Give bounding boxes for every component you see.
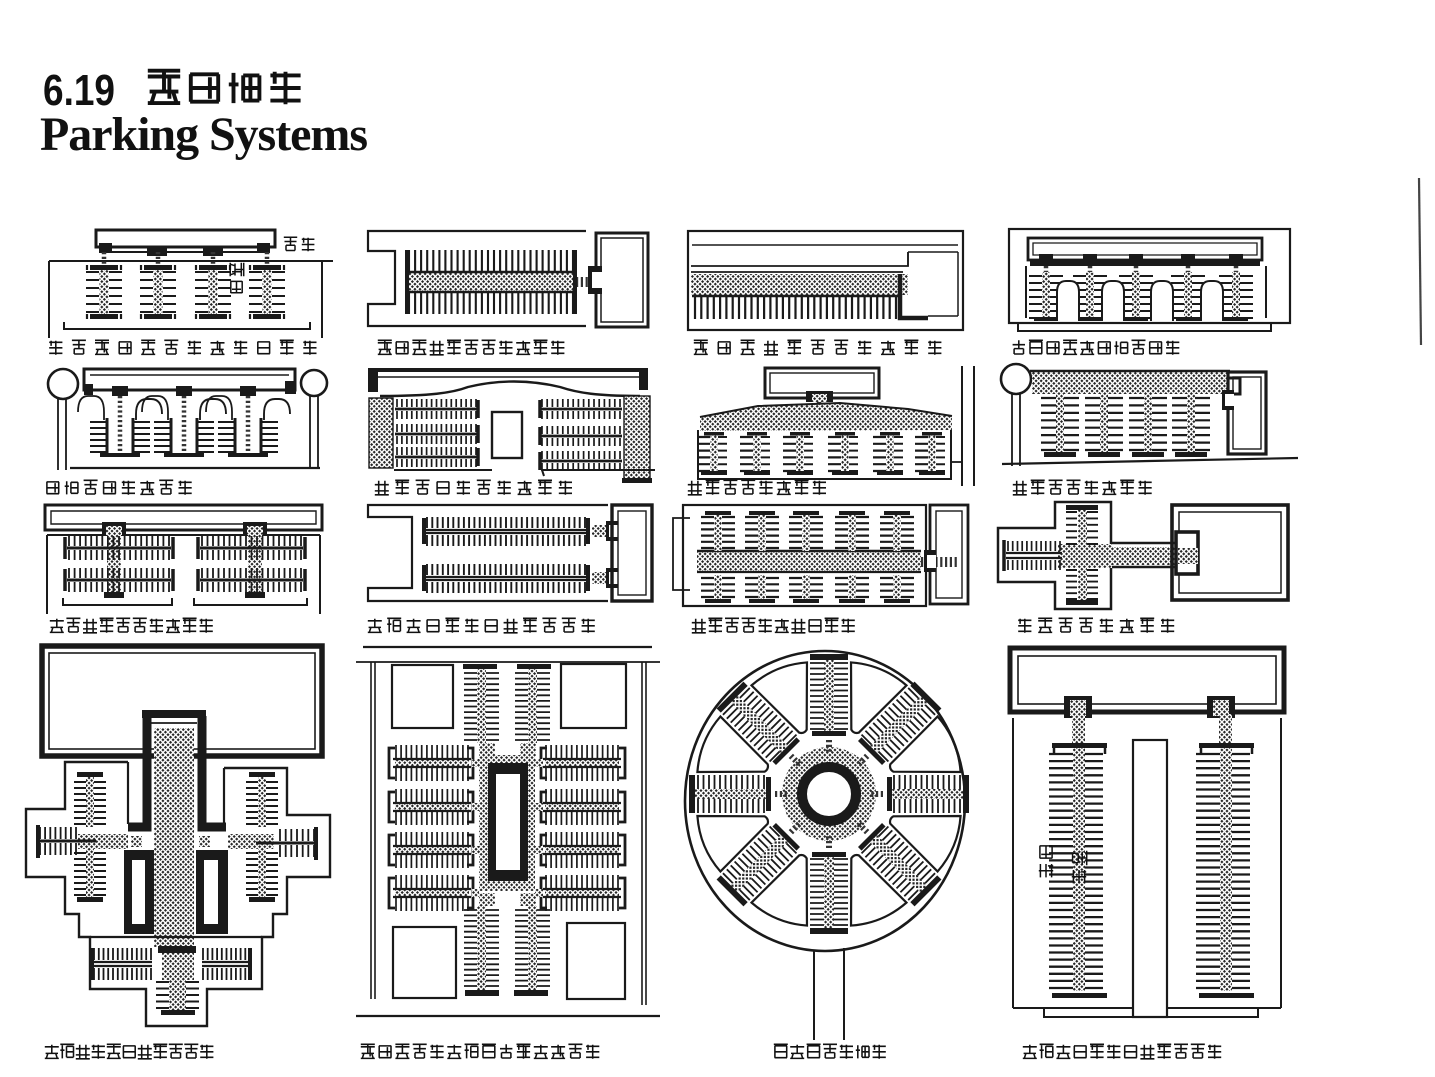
svg-text:Parking Systems: Parking Systems (40, 108, 368, 161)
